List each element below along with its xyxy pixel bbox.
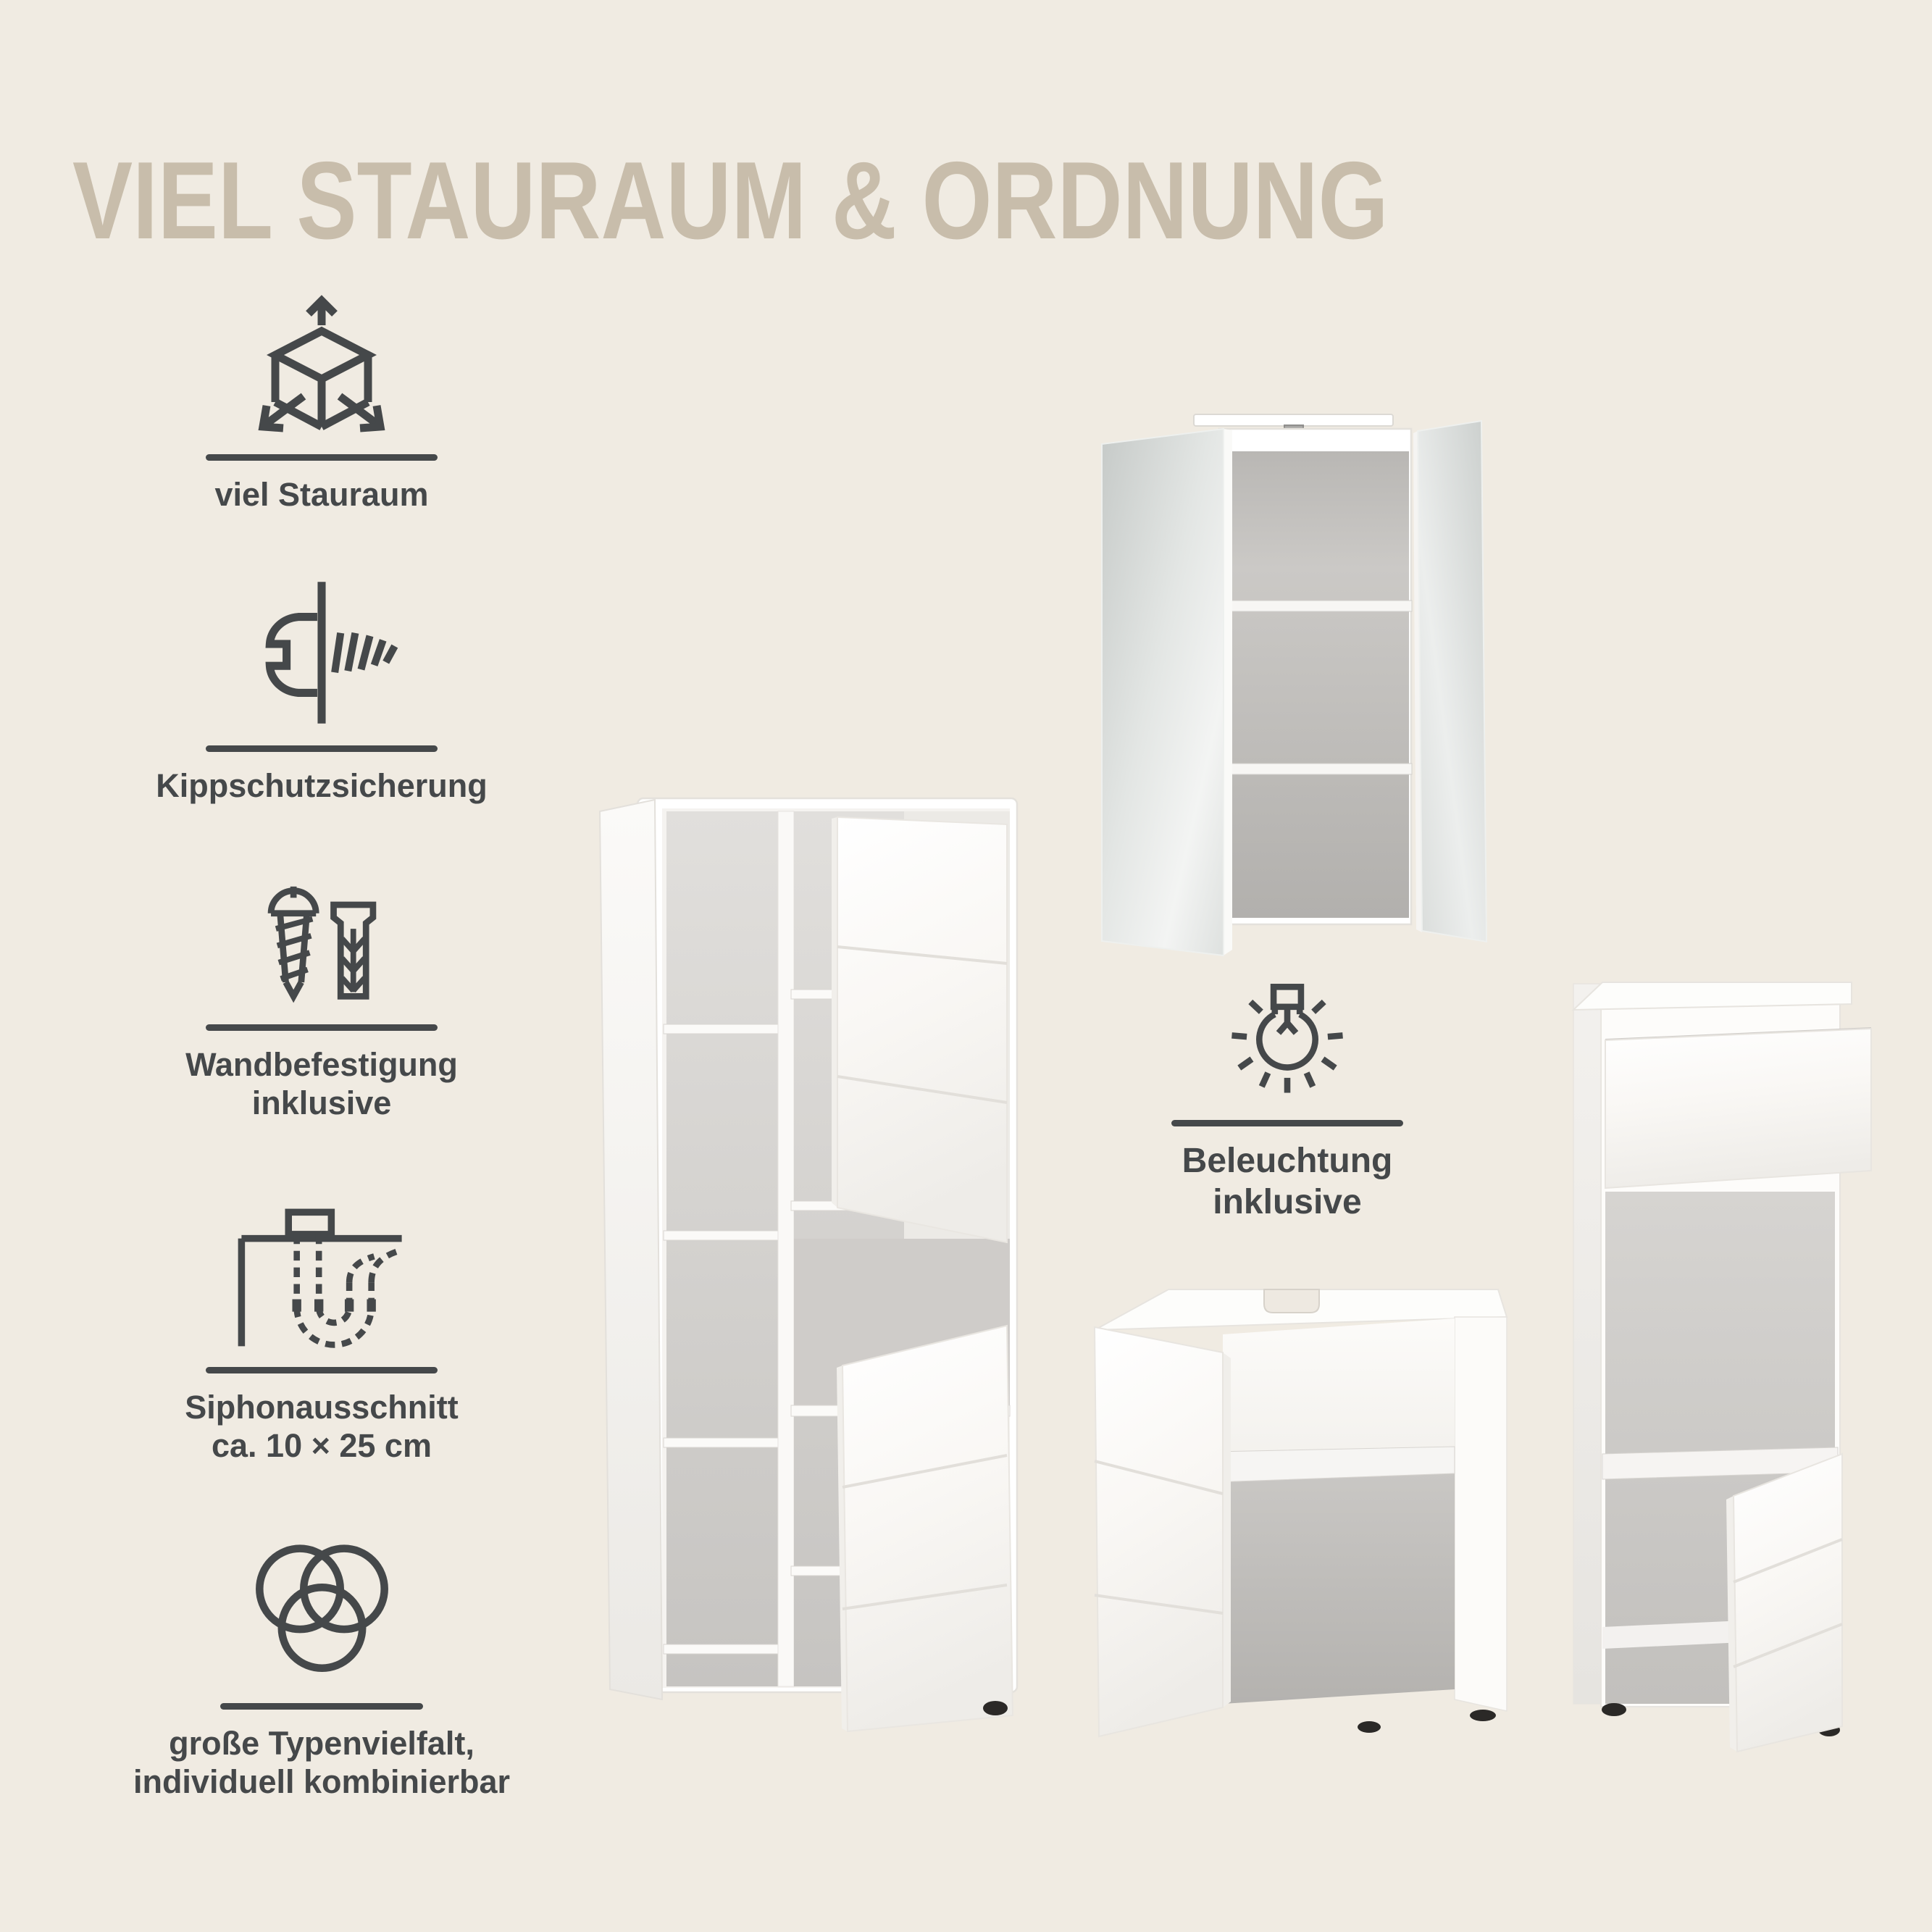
cabinet-carcass — [1219, 429, 1412, 924]
page-title: VIEL STAURAUM & ORDNUNG — [72, 138, 1389, 264]
left-door-open — [600, 800, 662, 1699]
divider — [206, 745, 438, 752]
divider — [1171, 1120, 1403, 1126]
anti-tip-lock-icon — [234, 576, 409, 729]
shelf — [1229, 764, 1412, 774]
lower-right-door-open — [837, 1326, 1013, 1731]
divider — [206, 454, 438, 461]
feature-typenvielfalt: große Typenvielfalt, individuell kombini… — [112, 1539, 532, 1801]
feature-label: Siphonausschnitt ca. 10 × 25 cm — [185, 1388, 459, 1465]
mirror-door-left — [1102, 429, 1232, 955]
screw-dowel-icon — [248, 878, 396, 1008]
cabinet-foot — [983, 1701, 1008, 1715]
cube-arrows-icon — [246, 293, 398, 438]
feature-label: Beleuchtung inklusive — [1182, 1141, 1393, 1223]
open-shelf-column-left — [664, 811, 781, 1686]
venn-circles-icon — [242, 1539, 402, 1687]
mirror-cabinet-with-light — [1097, 409, 1489, 960]
cabinet-foot — [1358, 1721, 1381, 1733]
siphon-cutout — [1264, 1289, 1319, 1313]
side-panel-right — [1455, 1317, 1507, 1711]
upper-right-door-open — [832, 817, 1007, 1242]
side-cabinet-with-drawer — [1571, 977, 1875, 1755]
side-panel-left — [1573, 984, 1601, 1704]
feature-label: Wandbefestigung inklusive — [185, 1045, 458, 1122]
cabinet-foot — [1470, 1710, 1496, 1721]
washbasin-base-cabinet — [1085, 1284, 1520, 1747]
tall-storage-cabinet — [593, 790, 1042, 1739]
feature-label: große Typenvielfalt, individuell kombini… — [133, 1724, 510, 1801]
divider — [206, 1367, 438, 1373]
feature-kippschutz: Kippschutzsicherung — [112, 576, 532, 805]
light-bulb-icon — [1216, 979, 1359, 1104]
feature-beleuchtung: Beleuchtung inklusive — [1142, 979, 1432, 1223]
feature-wandbefestigung: Wandbefestigung inklusive — [112, 878, 532, 1122]
feature-siphon: Siphonausschnitt ca. 10 × 25 cm — [112, 1203, 532, 1465]
divider — [220, 1703, 423, 1710]
mirror-door-right — [1413, 421, 1486, 942]
shelf — [1229, 601, 1412, 611]
feature-label: viel Stauraum — [214, 475, 428, 514]
door-open-left — [1095, 1327, 1231, 1736]
feature-stauraum: viel Stauraum — [112, 293, 532, 514]
siphon-cutout-icon — [231, 1203, 412, 1351]
center-divider-panel — [778, 811, 794, 1686]
door-open-bottom — [1726, 1454, 1842, 1752]
feature-label: Kippschutzsicherung — [156, 766, 488, 805]
cabinet-foot — [1602, 1703, 1626, 1716]
infographic-canvas: VIEL STAURAUM & ORDNUNG — [0, 0, 1932, 1932]
drawer-open — [1605, 1027, 1871, 1188]
open-compartment — [1216, 1447, 1455, 1704]
divider — [206, 1024, 438, 1031]
